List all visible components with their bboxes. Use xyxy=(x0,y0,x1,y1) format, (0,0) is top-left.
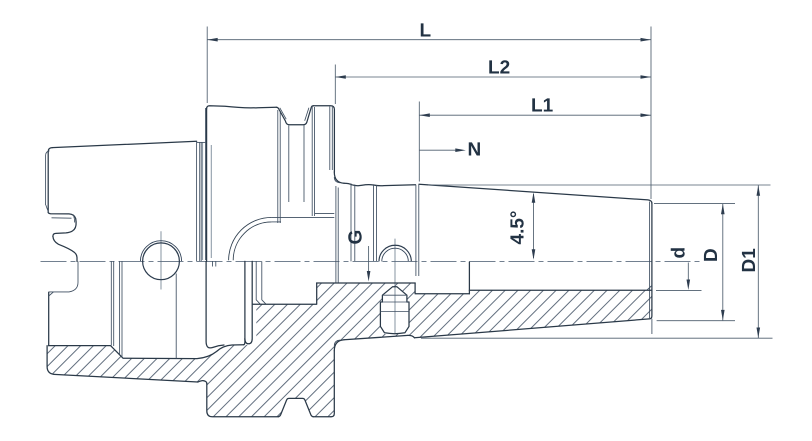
svg-text:D: D xyxy=(701,248,722,262)
svg-text:L1: L1 xyxy=(531,96,554,117)
svg-text:L2: L2 xyxy=(488,58,510,79)
svg-text:D1: D1 xyxy=(739,248,760,273)
svg-text:N: N xyxy=(468,140,482,161)
svg-text:4.5°: 4.5° xyxy=(508,210,529,244)
svg-text:G: G xyxy=(346,230,367,245)
svg-text:d: d xyxy=(669,247,690,259)
svg-text:L: L xyxy=(420,21,432,42)
